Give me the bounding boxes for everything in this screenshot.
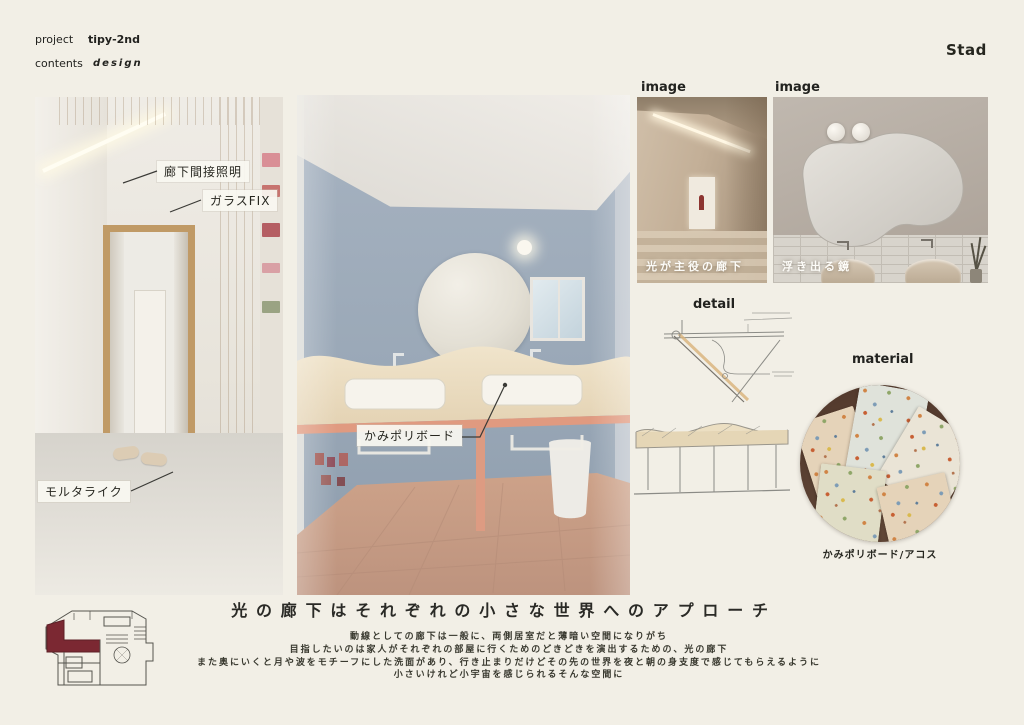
detail-sketch-section (652, 310, 797, 406)
material-sample-photo (800, 385, 960, 542)
annotation-glass-fix: ガラスFIX (203, 190, 277, 211)
statement-title: 光の廊下はそれぞれの小さな世界へのアプローチ (164, 597, 844, 621)
project-label: project (35, 33, 73, 46)
presentation-board: project tipy-2nd contents design Stad 廊下… (0, 0, 1024, 725)
washroom-render-image (297, 95, 630, 595)
contents-label: contents (35, 57, 83, 70)
slipper (112, 445, 139, 461)
statement-line: また奥にいくと月や波をモチーフにした洗面があり、行き止まりだけどその先の世界を夜… (104, 657, 914, 670)
wall-faucet (921, 239, 933, 241)
statement-line: 動線としての廊下は一般に、両側居室だと薄暗い空間になりがち (104, 631, 914, 644)
caption-corridor: 光が主役の廊下 (646, 258, 744, 274)
statement-line: 小さいけれど小宇宙を感じられるそんな空間に (104, 669, 914, 682)
wall-faucet (837, 241, 849, 243)
annotation-kami-poly-board: かみポリボード (357, 425, 462, 446)
sphere-light (852, 123, 870, 141)
mortar-floor (35, 433, 283, 595)
reference-image-mirror: 浮き出る鏡 (773, 97, 988, 283)
brand-logo: Stad (946, 41, 987, 59)
statement-line: 目指したいのは家人がそれぞれの部屋に行くためのどきどきを演出するための、光の廊下 (104, 644, 914, 657)
contents-value: design (93, 58, 143, 69)
annotation-mortar-like: モルタライク (38, 481, 130, 502)
caption-mirror: 浮き出る鏡 (782, 258, 852, 274)
basin-bowl (905, 259, 961, 283)
image-heading-2: image (775, 80, 820, 95)
sphere-light (827, 123, 845, 141)
material-caption: かみポリボード/アコス (795, 546, 965, 561)
slipper (140, 452, 167, 467)
project-value: tipy-2nd (88, 33, 140, 46)
annotation-indirect-lighting: 廊下間接照明 (157, 161, 249, 182)
statement-body: 動線としての廊下は一般に、両側居室だと薄暗い空間になりがち 目指したいのは家人が… (104, 631, 914, 682)
blob-mirror-graphic (773, 97, 988, 283)
plant-pot (970, 269, 982, 283)
material-heading: material (852, 352, 913, 367)
image-heading-1: image (641, 80, 686, 95)
reference-image-corridor: 光が主役の廊下 (637, 97, 767, 283)
figure-silhouette (699, 195, 704, 210)
detail-sketch-counter (628, 412, 796, 508)
